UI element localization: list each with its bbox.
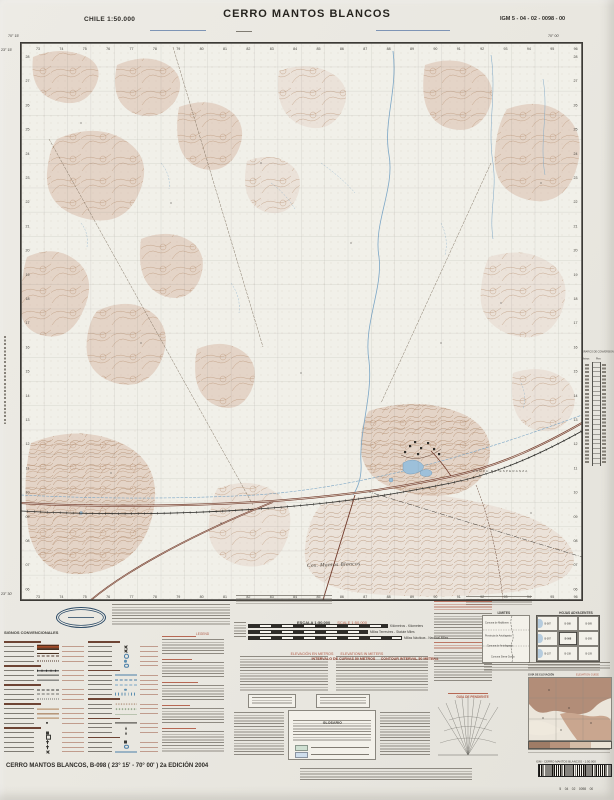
- legend-row-ruin: [4, 736, 84, 740]
- svg-text:13: 13: [26, 418, 30, 422]
- slope-guide-subtitle: [448, 693, 488, 694]
- top-margin-note: [236, 31, 252, 32]
- legend-row-canal: [88, 750, 158, 754]
- elevation-ramp-labels: [528, 749, 610, 753]
- svg-text:15: 15: [26, 370, 30, 374]
- credit-box-left: [248, 694, 296, 708]
- sheet-code: IGM 5 - 04 - 02 - 0098 - 00: [500, 16, 565, 22]
- svg-text:80: 80: [200, 595, 204, 599]
- svg-text:23: 23: [574, 176, 578, 180]
- boundary-item: Comuna de Antofagasta: [487, 645, 513, 647]
- legend-row-depression-contour: [4, 717, 84, 721]
- svg-text:74: 74: [59, 47, 63, 51]
- legend-row-cultivated-land: [88, 712, 158, 716]
- top-margin-note: [376, 30, 450, 31]
- map-frame: Cos. Mantos Blancos PAMPA DE ESPERANZA 7…: [20, 42, 583, 601]
- conversion-ticks-left: [585, 364, 589, 464]
- conversion-ticks-right: [602, 364, 606, 464]
- datum-paragraph-right: [336, 656, 428, 692]
- legend-row-railway: [4, 669, 84, 673]
- communal-boundary-symbol: [37, 697, 59, 702]
- svg-text:11: 11: [574, 466, 578, 470]
- svg-text:94: 94: [527, 47, 531, 51]
- legend-row-mine: [88, 645, 158, 649]
- legend-section-heading: [4, 702, 84, 706]
- boundaries-diagram: Comuna de Mejillones Provincia de Antofa…: [482, 615, 530, 663]
- svg-text:27: 27: [574, 79, 578, 83]
- legend-row-spot-height: [4, 721, 84, 725]
- svg-text:28: 28: [26, 55, 30, 59]
- map-sheet: CHILE 1:50.000 CERRO MANTOS BLANCOS IGM …: [0, 0, 614, 800]
- legend-row-triangulation-point: [88, 731, 158, 735]
- sheet-cell: B-109: [578, 646, 599, 661]
- svg-text:87: 87: [363, 595, 367, 599]
- svg-text:89: 89: [410, 47, 414, 51]
- svg-text:73: 73: [36, 47, 40, 51]
- svg-text:21: 21: [574, 224, 578, 228]
- glossary-box: GLOSARIO: [288, 710, 376, 760]
- svg-text:78: 78: [153, 47, 157, 51]
- datum-paragraph-left: [240, 656, 328, 692]
- production-credits: [112, 604, 230, 626]
- svg-text:16: 16: [574, 345, 578, 349]
- svg-text:91: 91: [457, 595, 461, 599]
- corner-lat-north: 23° 15': [1, 48, 12, 52]
- marsh-symbol: [115, 692, 137, 697]
- signos-title: SIGNOS CONVENCIONALES: [4, 631, 58, 635]
- legend-row-cemetery: [4, 745, 84, 749]
- barcode-digits: 5 04 02 0098 00: [559, 787, 593, 790]
- legend-section-heading: [88, 717, 158, 721]
- svg-text:85: 85: [317, 47, 321, 51]
- legend-row-windmill: [88, 664, 158, 668]
- sheet-cell: B-088: [558, 616, 579, 631]
- legend-section-heading: [88, 640, 158, 644]
- conversion-chart-title: GRÁFICO DE CONVERSIÓN: [582, 351, 614, 353]
- legend-symbols-column-a: [4, 640, 84, 754]
- legend-row-intermittent-stream: [88, 683, 158, 687]
- svg-text:12: 12: [574, 442, 578, 446]
- svg-text:96: 96: [574, 595, 578, 599]
- svg-text:22: 22: [574, 200, 578, 204]
- igm-logo: [56, 607, 106, 628]
- svg-text:89: 89: [410, 595, 414, 599]
- legend-row-building: [4, 731, 84, 735]
- svg-text:08: 08: [574, 539, 578, 543]
- svg-text:09: 09: [574, 515, 578, 519]
- svg-text:16: 16: [26, 345, 30, 349]
- sheet-cell: B-107: [537, 646, 558, 661]
- svg-text:19: 19: [26, 273, 30, 277]
- legend-section-heading: [4, 726, 84, 730]
- svg-text:75: 75: [83, 595, 87, 599]
- legend-row-communal-boundary: [4, 697, 84, 701]
- corner-lat-south: 23° 30': [1, 592, 12, 596]
- top-margin-note: [150, 30, 206, 31]
- scale-bar-miles: [248, 630, 368, 634]
- elevation-guide-title-en: ELEVATION GUIDE: [576, 674, 599, 677]
- cultivated-land-symbol: [115, 711, 137, 716]
- svg-text:17: 17: [574, 321, 578, 325]
- canal-symbol: [115, 750, 137, 755]
- legend-row-well: [88, 654, 158, 658]
- svg-text:18: 18: [574, 297, 578, 301]
- legend-row-antenna: [88, 726, 158, 730]
- legend-row-index-contour: [4, 712, 84, 716]
- conversion-unit-left: Metros: [582, 358, 589, 360]
- sheet-cell: B-087: [537, 616, 558, 631]
- legend-en-title: LEGEND: [196, 632, 209, 635]
- legend-row-canal: [88, 673, 158, 677]
- svg-text:07: 07: [574, 563, 578, 567]
- elevation-ramp: [528, 741, 612, 749]
- svg-text:90: 90: [433, 47, 437, 51]
- scale-units-micro: [234, 622, 246, 638]
- sheet-cell: B-089: [578, 616, 599, 631]
- svg-text:13: 13: [574, 418, 578, 422]
- svg-text:26: 26: [26, 103, 30, 107]
- svg-text:20: 20: [574, 249, 578, 253]
- svg-text:88: 88: [387, 595, 391, 599]
- svg-text:12: 12: [26, 442, 30, 446]
- svg-text:74: 74: [59, 595, 63, 599]
- barcode-label: IGM - CERRO MANTOS BLANCOS - 1:50.000: [536, 761, 596, 764]
- svg-text:81: 81: [223, 47, 227, 51]
- legend-section-heading: [4, 683, 84, 687]
- svg-text:19: 19: [574, 273, 578, 277]
- svg-text:77: 77: [130, 595, 134, 599]
- footer-sheet-line: CERRO MANTOS BLANCOS, B-098 ( 23° 15' - …: [6, 763, 208, 769]
- igm-logo-text: [68, 617, 94, 618]
- svg-text:76: 76: [106, 47, 110, 51]
- svg-text:14: 14: [574, 394, 578, 398]
- svg-text:96: 96: [574, 47, 578, 51]
- svg-text:27: 27: [26, 79, 30, 83]
- svg-text:95: 95: [550, 595, 554, 599]
- legend-symbols-column-b: [88, 640, 158, 754]
- elevation-guide-title-es: GUÍA DE ELEVACIÓN: [528, 674, 554, 677]
- sheet-cell: B-108: [558, 646, 579, 661]
- adjoining-sheets-grid: B-087 B-088 B-089 B-097 B-098 B-099 B-10…: [536, 615, 600, 662]
- svg-text:14: 14: [26, 394, 30, 398]
- svg-text:91: 91: [457, 47, 461, 51]
- mine-symbol: [37, 750, 59, 755]
- barcode: [538, 764, 612, 777]
- legend-section-heading: [4, 664, 84, 668]
- svg-text:93: 93: [504, 47, 508, 51]
- legend-row-waterhole: [88, 688, 158, 692]
- glossary-swatch-green: [295, 745, 308, 751]
- footer-copyright: [300, 768, 472, 781]
- boundary-item: Provincia de Antofagasta: [485, 635, 512, 637]
- svg-text:95: 95: [550, 47, 554, 51]
- slope-guide-fan: [436, 697, 500, 757]
- svg-text:80: 80: [200, 47, 204, 51]
- legend-section-heading: [88, 736, 158, 740]
- spot-height-symbol: [37, 721, 59, 726]
- svg-text:17: 17: [26, 321, 30, 325]
- svg-text:78: 78: [153, 595, 157, 599]
- svg-text:21: 21: [26, 224, 30, 228]
- sheet-cell: B-097: [537, 631, 558, 646]
- svg-text:22: 22: [26, 200, 30, 204]
- svg-text:06: 06: [26, 587, 30, 591]
- svg-text:24: 24: [574, 152, 578, 156]
- svg-text:15: 15: [574, 370, 578, 374]
- svg-text:09: 09: [26, 515, 30, 519]
- svg-text:73: 73: [36, 595, 40, 599]
- svg-text:87: 87: [363, 47, 367, 51]
- legend-row-contour-line: [4, 707, 84, 711]
- svg-text:08: 08: [26, 539, 30, 543]
- elevation-guide-art: [529, 678, 611, 740]
- svg-text:18: 18: [26, 297, 30, 301]
- svg-text:10: 10: [26, 491, 30, 495]
- legend-row-quarry: [88, 650, 158, 654]
- compilation-note: [236, 595, 332, 604]
- svg-text:90: 90: [433, 595, 437, 599]
- triangulation-point-symbol: [115, 730, 137, 735]
- legend-row-airfield: [88, 721, 158, 725]
- scale-bar-nautical: [248, 636, 402, 640]
- svg-text:92: 92: [480, 47, 484, 51]
- utm-grid: [21, 43, 582, 600]
- svg-text:88: 88: [387, 47, 391, 51]
- legend-section-heading: [4, 640, 84, 644]
- legend-row-scrub: [88, 707, 158, 711]
- svg-text:26: 26: [574, 103, 578, 107]
- corner-lon-west: 70° 15': [8, 34, 19, 38]
- svg-text:76: 76: [106, 595, 110, 599]
- svg-text:79: 79: [176, 595, 180, 599]
- legend-row-mine: [4, 750, 84, 754]
- credit-box-right: [316, 694, 370, 708]
- pampa-label: PAMPA DE ESPERANZA: [473, 469, 529, 473]
- topographic-map: Cos. Mantos Blancos PAMPA DE ESPERANZA 7…: [21, 43, 582, 600]
- glossary-swatch-blue: [295, 752, 308, 758]
- legend-row-regional-boundary: [4, 693, 84, 697]
- svg-text:25: 25: [574, 128, 578, 132]
- svg-text:83: 83: [270, 47, 274, 51]
- svg-text:10: 10: [574, 491, 578, 495]
- barcode-digits-row: 5 04 02 0098 00: [534, 778, 614, 796]
- svg-text:25: 25: [26, 128, 30, 132]
- legend-row-water-tank: [88, 659, 158, 663]
- legend-row-aqueduct: [88, 678, 158, 682]
- boundary-item: Comuna de Mejillones: [485, 622, 509, 624]
- fence-symbol: [37, 678, 59, 683]
- sheet-cell-current: B-098: [558, 631, 579, 646]
- legend-row-international-boundary: [4, 688, 84, 692]
- legend-row-sand: [88, 702, 158, 706]
- legend-row-power-line: [4, 673, 84, 677]
- svg-text:11: 11: [26, 466, 30, 470]
- svg-text:75: 75: [83, 47, 87, 51]
- svg-text:86: 86: [340, 595, 344, 599]
- left-margin-imprint: [4, 336, 6, 424]
- conversion-unit-right: Pies: [596, 358, 601, 360]
- scale-bar-km-label: Kilómetros - Kilometers: [390, 624, 423, 627]
- trail-symbol: [37, 659, 59, 664]
- svg-text:23: 23: [26, 176, 30, 180]
- legend-row-church: [4, 740, 84, 744]
- legend-row-fence: [4, 678, 84, 682]
- legend-row-track: [4, 654, 84, 658]
- legend-row-marsh: [88, 693, 158, 697]
- svg-text:06: 06: [574, 587, 578, 591]
- legend-section-heading: [88, 669, 158, 673]
- windmill-symbol: [115, 663, 137, 668]
- svg-text:81: 81: [223, 595, 227, 599]
- scale-bar-miles-label: Millas Terrestres - Statute Miles: [370, 630, 415, 633]
- conversion-ruler: [592, 362, 601, 466]
- scale-bar-km: [248, 624, 388, 628]
- svg-text:20: 20: [26, 249, 30, 253]
- svg-text:28: 28: [574, 55, 578, 59]
- elevation-guide-note: [528, 662, 610, 669]
- svg-text:82: 82: [246, 47, 250, 51]
- legend-row-gravel-road: [4, 650, 84, 654]
- svg-text:86: 86: [340, 47, 344, 51]
- legend-row-paved-road: [4, 645, 84, 649]
- corner-lon-east: 70° 00': [548, 34, 559, 38]
- svg-text:84: 84: [293, 47, 297, 51]
- sheet-cell: B-099: [578, 631, 599, 646]
- svg-text:24: 24: [26, 152, 30, 156]
- legend-row-building: [88, 740, 158, 744]
- legend-section-heading: [88, 697, 158, 701]
- notes-paragraph-left: [234, 712, 284, 756]
- boundary-item: Comuna Sierra Gorda: [491, 656, 514, 658]
- svg-text:77: 77: [130, 47, 134, 51]
- elevation-guide-map: [528, 677, 612, 741]
- svg-text:79: 79: [176, 47, 180, 51]
- legend-row-trail: [4, 659, 84, 663]
- svg-text:07: 07: [26, 563, 30, 567]
- legend-row-well: [88, 745, 158, 749]
- notes-paragraph-right: [380, 712, 430, 756]
